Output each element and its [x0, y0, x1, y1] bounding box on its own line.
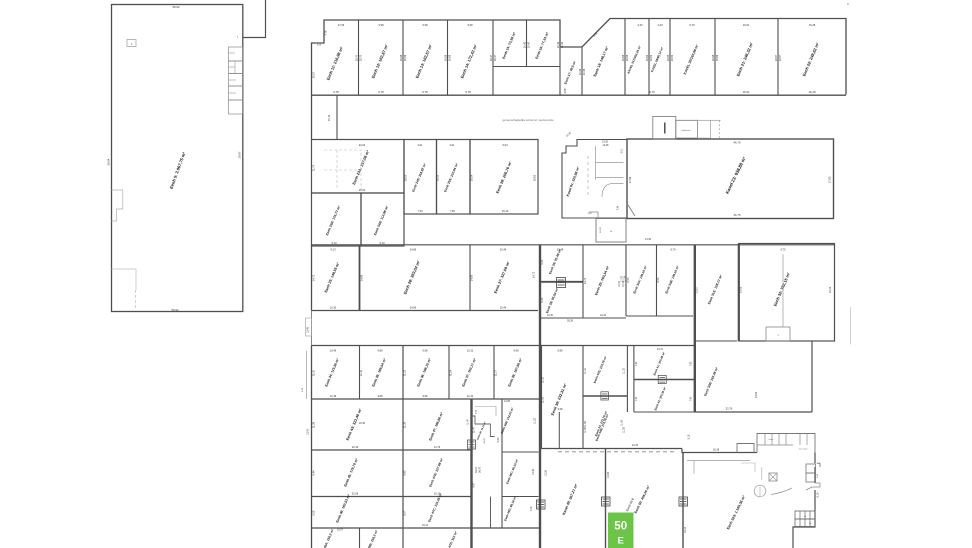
svg-text:4,01: 4,01 — [449, 143, 455, 147]
svg-text:9,79: 9,79 — [670, 248, 676, 252]
svg-text:20,02: 20,02 — [359, 188, 366, 192]
svg-text:59.92: 59.92 — [172, 308, 179, 312]
svg-text:24,33: 24,33 — [632, 444, 639, 447]
svg-text:9,98: 9,98 — [378, 23, 384, 27]
svg-text:11,50: 11,50 — [623, 426, 626, 432]
svg-text:10,06: 10,06 — [603, 144, 610, 147]
svg-text:11,18: 11,18 — [542, 376, 545, 383]
svg-text:16,68: 16,68 — [404, 54, 407, 61]
svg-text:20,45: 20,45 — [359, 422, 366, 425]
svg-text:18,69: 18,69 — [646, 54, 649, 61]
svg-text:14,71: 14,71 — [533, 271, 536, 278]
svg-text:29.97: 29.97 — [238, 151, 242, 158]
svg-text:9,79: 9,79 — [689, 23, 695, 27]
svg-text:9,79: 9,79 — [649, 90, 655, 94]
svg-text:17,83: 17,83 — [828, 176, 832, 183]
svg-text:4,30: 4,30 — [637, 23, 643, 27]
svg-text:4,76: 4,76 — [325, 30, 328, 35]
svg-text:10,42: 10,42 — [557, 41, 560, 48]
svg-text:10,13: 10,13 — [327, 114, 331, 121]
svg-text:9,97: 9,97 — [473, 482, 476, 487]
svg-text:5,08: 5,08 — [313, 510, 316, 515]
svg-text:31,02: 31,02 — [484, 437, 486, 443]
svg-text:18,68: 18,68 — [716, 54, 719, 61]
svg-text:8,57: 8,57 — [404, 510, 407, 515]
svg-text:11,50: 11,50 — [621, 419, 624, 425]
svg-text:14,66: 14,66 — [361, 274, 364, 281]
svg-text:9,98: 9,98 — [422, 349, 428, 353]
svg-text:10,49: 10,49 — [330, 349, 337, 353]
svg-text:46,76: 46,76 — [734, 141, 741, 145]
svg-text:9,78: 9,78 — [465, 90, 471, 94]
svg-text:18,69: 18,69 — [671, 54, 674, 61]
svg-text:11,10: 11,10 — [313, 369, 316, 376]
svg-text:10,48: 10,48 — [607, 471, 610, 478]
svg-text:18,69: 18,69 — [667, 54, 670, 61]
svg-text:14,71: 14,71 — [313, 274, 316, 281]
svg-text:10,57: 10,57 — [337, 529, 344, 532]
svg-text:10,43: 10,43 — [307, 428, 310, 435]
svg-text:8,16: 8,16 — [817, 492, 820, 497]
svg-text:18,88: 18,88 — [626, 54, 629, 61]
svg-text:8,50: 8,50 — [657, 277, 660, 282]
svg-text:59.92: 59.92 — [173, 5, 180, 9]
svg-text:14,62: 14,62 — [755, 391, 758, 398]
svg-text:24,86: 24,86 — [410, 248, 417, 252]
svg-text:7,34: 7,34 — [617, 205, 620, 210]
svg-text:14,71: 14,71 — [584, 277, 587, 284]
svg-text:8,50: 8,50 — [627, 277, 630, 282]
svg-text:11,70: 11,70 — [312, 164, 316, 171]
svg-text:10,32: 10,32 — [600, 226, 602, 232]
svg-text:9,98: 9,98 — [423, 395, 428, 398]
svg-text:16,47: 16,47 — [494, 54, 497, 61]
svg-text:7,40: 7,40 — [636, 396, 638, 401]
svg-text:36,70: 36,70 — [479, 466, 482, 473]
svg-text:15,43: 15,43 — [502, 209, 509, 213]
svg-text:16,91: 16,91 — [743, 90, 750, 94]
svg-text:11,12: 11,12 — [404, 369, 407, 376]
svg-text:16,13: 16,13 — [422, 524, 429, 527]
svg-text:13,04: 13,04 — [829, 286, 832, 293]
svg-text:10,40: 10,40 — [524, 41, 527, 48]
svg-text:18,70: 18,70 — [359, 54, 362, 61]
svg-text:koffiekamer: koffiekamer — [681, 130, 691, 132]
svg-text:17,34: 17,34 — [625, 275, 627, 281]
svg-text:18,68: 18,68 — [712, 54, 715, 61]
svg-text:16,68: 16,68 — [445, 54, 448, 61]
svg-text:9,88: 9,88 — [378, 395, 383, 398]
svg-text:13,07: 13,07 — [696, 286, 699, 293]
svg-text:15,44: 15,44 — [500, 248, 507, 252]
svg-text:9,78: 9,78 — [333, 90, 339, 94]
svg-text:11,32: 11,32 — [623, 367, 626, 373]
svg-text:13,06: 13,06 — [740, 286, 743, 293]
svg-text:7,40: 7,40 — [691, 396, 693, 401]
svg-text:8,63: 8,63 — [404, 470, 407, 475]
svg-text:46,75: 46,75 — [734, 213, 741, 217]
svg-text:6,30: 6,30 — [541, 259, 544, 264]
svg-text:9,94: 9,94 — [502, 143, 508, 147]
svg-text:4,01: 4,01 — [417, 143, 423, 147]
svg-text:9,98: 9,98 — [513, 349, 519, 353]
svg-text:18,67: 18,67 — [775, 54, 778, 61]
svg-text:9,98: 9,98 — [422, 23, 428, 27]
svg-text:16,91: 16,91 — [743, 23, 750, 27]
svg-text:13,08: 13,08 — [504, 401, 510, 403]
svg-text:11,31: 11,31 — [584, 367, 587, 373]
svg-text:10,30: 10,30 — [330, 307, 337, 310]
svg-text:16,68: 16,68 — [400, 54, 403, 61]
svg-text:7,40: 7,40 — [636, 361, 638, 366]
svg-text:9,98: 9,98 — [558, 408, 563, 411]
svg-text:15,26: 15,26 — [545, 469, 548, 476]
svg-text:7,40: 7,40 — [691, 361, 693, 366]
svg-text:16,13: 16,13 — [434, 493, 441, 496]
svg-text:20,49: 20,49 — [352, 446, 359, 449]
svg-text:5,18: 5,18 — [688, 434, 691, 439]
svg-text:18,52: 18,52 — [404, 174, 408, 181]
svg-text:32,76: 32,76 — [726, 407, 733, 411]
svg-text:14,72: 14,72 — [657, 348, 664, 351]
svg-text:16,28: 16,28 — [809, 90, 816, 94]
svg-text:17,28: 17,28 — [622, 275, 624, 281]
svg-text:10,38: 10,38 — [579, 68, 582, 75]
svg-text:10,32: 10,32 — [600, 314, 607, 317]
svg-text:23,07: 23,07 — [312, 71, 316, 78]
svg-text:7,20: 7,20 — [530, 506, 533, 511]
svg-text:18,67: 18,67 — [779, 54, 782, 61]
svg-text:18,54: 18,54 — [470, 174, 474, 181]
svg-text:E: E — [618, 536, 624, 547]
svg-text:16,28: 16,28 — [809, 23, 816, 27]
svg-text:5,01: 5,01 — [622, 148, 624, 153]
svg-text:14,68: 14,68 — [471, 274, 474, 281]
svg-text:11,38: 11,38 — [404, 421, 407, 428]
svg-text:11,47: 11,47 — [468, 418, 470, 424]
svg-text:18,70: 18,70 — [356, 54, 359, 61]
svg-text:9,98: 9,98 — [467, 23, 473, 27]
svg-text:16,10: 16,10 — [684, 526, 687, 533]
svg-text:16,68: 16,68 — [448, 54, 451, 61]
svg-text:13,69: 13,69 — [645, 238, 652, 241]
svg-text:9,88: 9,88 — [377, 349, 383, 353]
svg-text:15,48: 15,48 — [557, 248, 564, 252]
svg-text:10,36: 10,36 — [532, 468, 535, 475]
svg-text:9,78: 9,78 — [422, 90, 428, 94]
svg-text:17,84: 17,84 — [628, 176, 632, 183]
svg-text:was ruimte: was ruimte — [799, 448, 808, 451]
svg-text:4,30: 4,30 — [657, 23, 663, 27]
svg-text:9,13: 9,13 — [330, 248, 336, 252]
svg-text:18,62: 18,62 — [533, 174, 537, 181]
svg-text:gemeenschappelijke ruimte incl: gemeenschappelijke ruimte incl. servicer… — [502, 119, 554, 122]
svg-text:14,79: 14,79 — [434, 446, 441, 449]
svg-text:20,02: 20,02 — [359, 143, 366, 147]
svg-text:15,44: 15,44 — [500, 307, 507, 310]
svg-text:16,47: 16,47 — [490, 54, 493, 61]
svg-text:9,75: 9,75 — [780, 248, 786, 252]
svg-text:11,52: 11,52 — [534, 417, 537, 423]
svg-text:11,17: 11,17 — [495, 369, 498, 376]
svg-text:58.04: 58.04 — [106, 158, 110, 165]
svg-text:10,40: 10,40 — [527, 41, 530, 48]
svg-text:11,11: 11,11 — [360, 369, 363, 375]
svg-text:9,78: 9,78 — [378, 90, 384, 94]
svg-text:11,47: 11,47 — [473, 426, 476, 433]
svg-text:18,88: 18,88 — [622, 54, 625, 61]
svg-text:4,66: 4,66 — [563, 88, 567, 94]
svg-text:6,44: 6,44 — [313, 470, 316, 475]
svg-text:7,30: 7,30 — [417, 209, 423, 213]
svg-text:18,53: 18,53 — [436, 174, 440, 181]
svg-text:16,38: 16,38 — [713, 448, 720, 451]
svg-text:11,50: 11,50 — [584, 420, 587, 426]
svg-text:50: 50 — [614, 521, 627, 533]
svg-text:7,38: 7,38 — [449, 209, 455, 213]
svg-text:11,18: 11,18 — [542, 396, 545, 403]
svg-text:10,38: 10,38 — [583, 68, 586, 75]
svg-text:5,40: 5,40 — [497, 437, 500, 442]
svg-text:11,14: 11,14 — [450, 369, 453, 376]
svg-text:10,48: 10,48 — [307, 326, 310, 333]
svg-text:11,38: 11,38 — [313, 421, 316, 428]
svg-text:20,58: 20,58 — [352, 493, 359, 496]
svg-text:30,28: 30,28 — [567, 320, 574, 323]
svg-text:entree: entree — [769, 438, 774, 441]
svg-text:6,30: 6,30 — [541, 297, 544, 302]
svg-text:18,69: 18,69 — [650, 54, 653, 61]
svg-text:10,39: 10,39 — [330, 395, 337, 398]
svg-text:27,06: 27,06 — [338, 23, 345, 27]
svg-text:9,98: 9,98 — [557, 349, 563, 353]
svg-text:10,42: 10,42 — [561, 41, 564, 48]
svg-text:10,32: 10,32 — [467, 395, 474, 398]
svg-text:10,32: 10,32 — [467, 349, 474, 353]
svg-text:24,86: 24,86 — [410, 307, 417, 310]
svg-text:10,30: 10,30 — [547, 314, 554, 317]
